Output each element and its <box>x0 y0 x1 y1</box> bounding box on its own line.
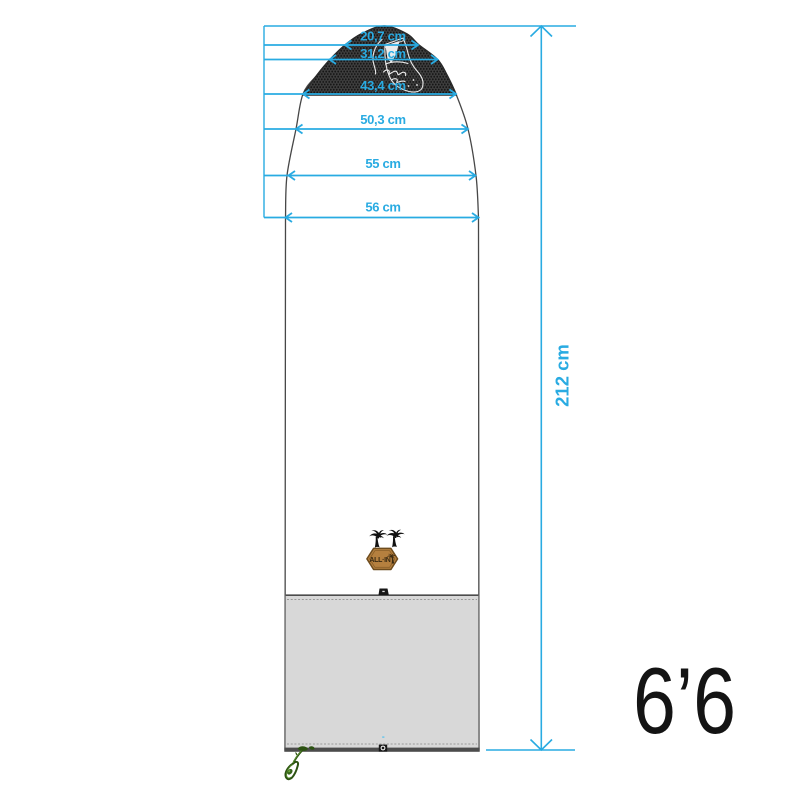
svg-text:31,2 cm: 31,2 cm <box>360 46 406 61</box>
svg-text:43,4 cm: 43,4 cm <box>360 78 406 93</box>
svg-text:50,3 cm: 50,3 cm <box>360 112 406 127</box>
svg-text:6’6: 6’6 <box>633 648 736 753</box>
svg-text:20,7 cm: 20,7 cm <box>360 29 406 44</box>
svg-text:55 cm: 55 cm <box>365 156 400 171</box>
svg-text:56 cm: 56 cm <box>365 200 400 215</box>
svg-text:ALL·IN: ALL·IN <box>369 557 390 564</box>
svg-text:212 cm: 212 cm <box>552 344 573 407</box>
